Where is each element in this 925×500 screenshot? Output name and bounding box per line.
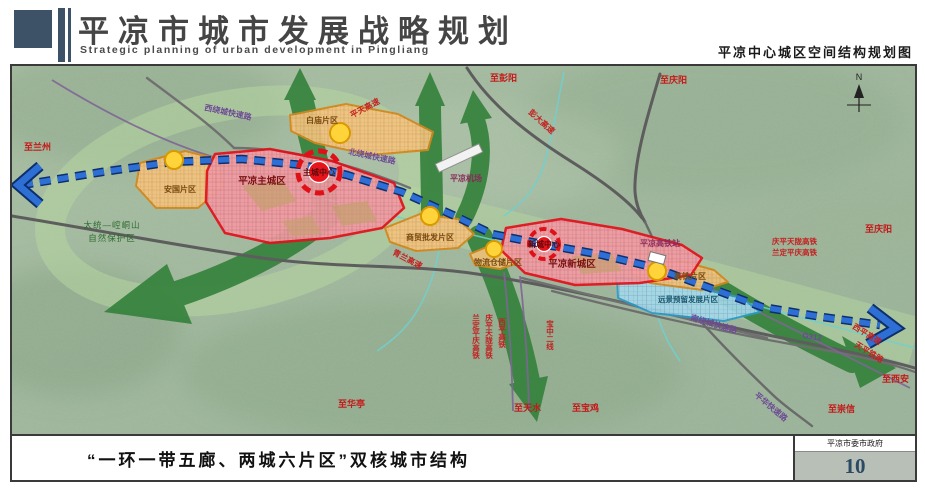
dest-xian: 至西安 — [882, 373, 909, 384]
node-wuliu — [486, 241, 502, 257]
agency-label: 平凉市委市政府 — [795, 436, 915, 452]
label-qingping-tianlong-hsr-south: 庆平天陇高铁 — [484, 313, 493, 361]
page-number-box: 平凉市委市政府 10 — [793, 436, 915, 480]
dest-baoji: 至宝鸡 — [572, 402, 599, 413]
plan-sheet: 平凉市城市发展战略规划 Strategic planning of urban … — [0, 0, 925, 500]
corridor-north-mid — [430, 104, 432, 216]
planning-map: N 至兰州 至彭阳 至庆阳 至庆阳 至西安 至崇信 至宝鸡 至天水 至华亭 彭大… — [10, 64, 917, 436]
label-nature-reserve-2: 自然保护区 — [88, 233, 136, 243]
label-shangmao: 商贸批发片区 — [406, 232, 454, 242]
logo-square — [14, 10, 52, 48]
compass-label: N — [856, 72, 863, 82]
label-anguo: 安国片区 — [164, 184, 196, 194]
label-landing-pingqing-hsr-south: 兰定平庆高铁 — [471, 313, 480, 361]
label-nature-reserve-1: 太统—崆峒山 — [83, 220, 140, 230]
label-xiping-hsr: 西平高铁 — [497, 318, 506, 350]
dest-pengyang: 至彭阳 — [490, 72, 517, 83]
dest-lanzhou: 至兰州 — [24, 141, 51, 152]
label-new-center: 新城中心 — [528, 239, 560, 249]
label-gaotie: 高铁片区 — [674, 271, 706, 281]
dest-tianshui: 至天水 — [514, 402, 542, 413]
dest-qingyang-north: 至庆阳 — [660, 74, 687, 85]
footer: “一环一带五廊、两城六片区”双核城市结构 平凉市委市政府 10 — [10, 434, 917, 482]
label-qingping-tianlong-hsr: 庆平天陇高铁 — [771, 236, 817, 246]
dest-qingyang-east: 至庆阳 — [865, 223, 892, 234]
label-main-city: 平凉主城区 — [238, 175, 286, 187]
label-wuliu: 物流仓储片区 — [474, 257, 522, 267]
label-landing-pingqing-hsr: 兰定平庆高铁 — [772, 247, 817, 257]
header: 平凉市城市发展战略规划 Strategic planning of urban … — [10, 6, 915, 62]
dest-huating: 至华亭 — [338, 398, 365, 409]
logo-bar — [58, 8, 65, 62]
label-baimiao: 白庙片区 — [306, 115, 338, 125]
page-number: 10 — [795, 452, 915, 480]
label-new-city: 平凉新城区 — [548, 258, 596, 270]
label-hsr-station: 平凉高铁站 — [640, 238, 680, 248]
label-reserved: 远景预留发展片区 — [658, 294, 718, 304]
map-caption: “一环一带五廊、两城六片区”双核城市结构 — [12, 436, 793, 480]
map-sheet-title: 平凉中心城区空间结构规划图 — [718, 42, 913, 61]
label-airport: 平凉机场 — [450, 173, 482, 183]
dest-chongxin: 至崇信 — [828, 403, 855, 414]
label-main-center: 主城中心 — [303, 167, 335, 177]
label-baozhong-line: 宝中二线 — [545, 319, 554, 352]
node-baimiao — [330, 123, 350, 143]
map-svg: N 至兰州 至彭阳 至庆阳 至庆阳 至西安 至崇信 至宝鸡 至天水 至华亭 彭大… — [12, 66, 915, 434]
node-anguo — [165, 151, 183, 169]
node-shangmao — [421, 207, 439, 225]
logo-bar-thin — [68, 8, 71, 62]
page-subtitle-en: Strategic planning of urban development … — [80, 44, 430, 56]
